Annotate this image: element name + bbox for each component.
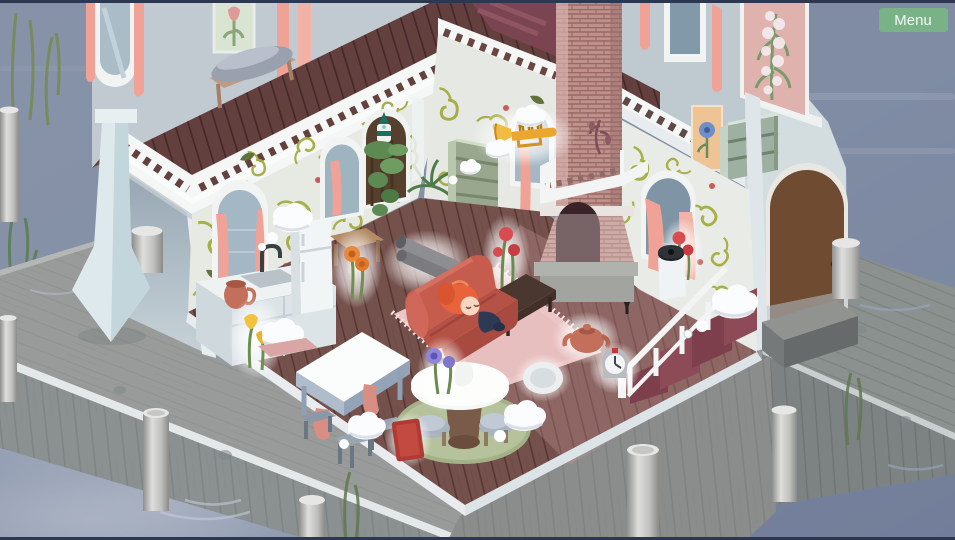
- svg-text:Menu: Menu: [894, 12, 932, 29]
